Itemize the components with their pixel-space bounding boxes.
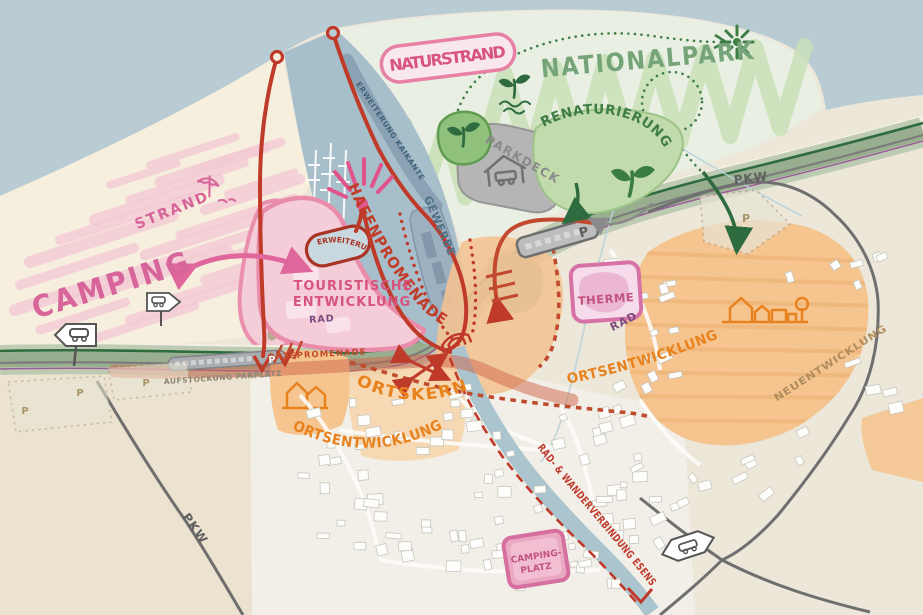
touristische-label-1: TOURISTISCHE xyxy=(293,279,412,294)
building xyxy=(399,542,412,551)
pier-end-marker xyxy=(272,52,283,63)
rad-label-west: RAD xyxy=(309,313,335,326)
building xyxy=(597,496,613,502)
parking-p: P xyxy=(21,406,28,417)
building xyxy=(506,450,514,457)
building xyxy=(320,483,330,494)
building xyxy=(318,454,330,465)
building xyxy=(386,532,402,539)
building xyxy=(632,471,647,482)
building xyxy=(421,520,430,528)
building xyxy=(629,535,639,543)
building xyxy=(374,512,387,522)
building xyxy=(363,498,379,508)
building xyxy=(498,486,511,497)
parking-p: P xyxy=(142,378,149,389)
building xyxy=(458,530,466,542)
building xyxy=(446,561,461,572)
site-plan-map: NATURSTRAND NATIONALPARK RENATURIERUNG P… xyxy=(0,0,923,615)
touristische-label-2: ENTWICKLUNG xyxy=(293,295,411,310)
parking-p: P xyxy=(742,212,750,225)
building xyxy=(649,497,661,503)
building xyxy=(620,482,627,488)
building xyxy=(416,448,429,455)
building xyxy=(461,409,474,418)
building xyxy=(484,475,492,484)
building xyxy=(470,538,484,549)
building xyxy=(349,399,356,408)
building xyxy=(354,542,366,550)
building xyxy=(461,545,469,554)
building xyxy=(493,431,501,440)
building xyxy=(358,415,371,426)
building xyxy=(659,283,669,294)
building xyxy=(358,470,369,481)
building xyxy=(634,453,642,461)
building xyxy=(376,543,388,556)
building xyxy=(337,520,345,526)
building xyxy=(466,420,482,432)
building xyxy=(422,527,432,533)
parking-p: P xyxy=(76,388,83,399)
building xyxy=(568,543,575,550)
building xyxy=(298,473,309,479)
building xyxy=(451,400,460,407)
building xyxy=(623,518,636,529)
building xyxy=(534,485,546,493)
building xyxy=(443,412,453,420)
building xyxy=(616,489,626,500)
parking-area-dotted-sw1 xyxy=(8,376,112,432)
building xyxy=(317,533,330,538)
building xyxy=(494,516,504,525)
pier-end-marker xyxy=(328,28,339,39)
plan-canvas: NATURSTRAND NATIONALPARK RENATURIERUNG P… xyxy=(0,0,923,615)
building xyxy=(475,492,483,498)
parking-p: P xyxy=(268,354,276,365)
building xyxy=(483,559,492,570)
building xyxy=(611,579,620,588)
